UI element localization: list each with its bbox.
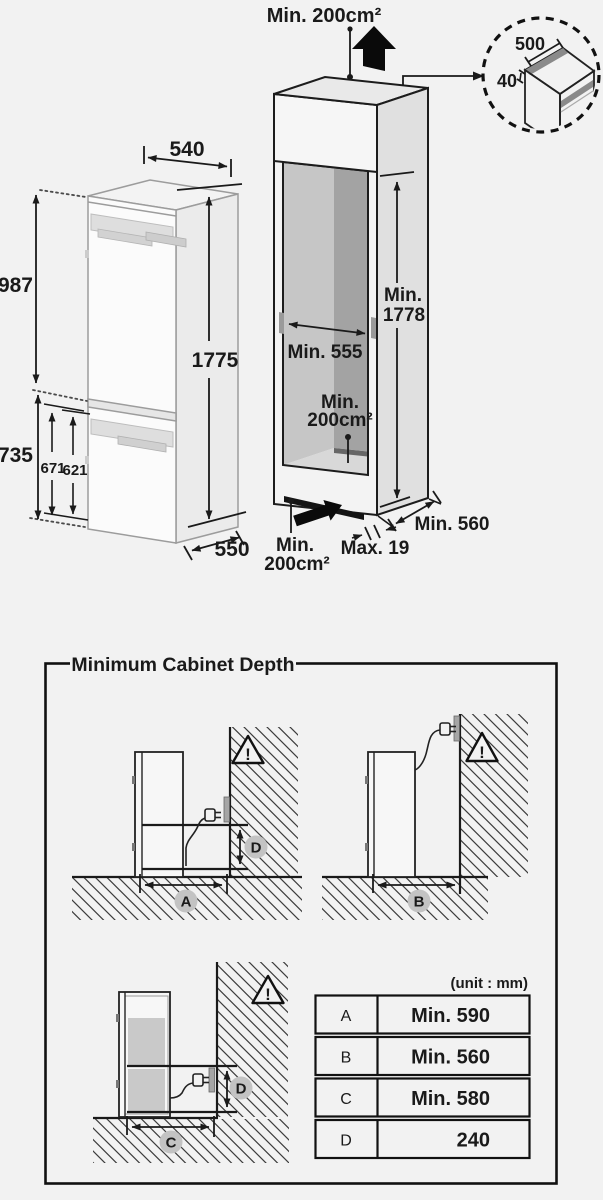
fridge-upper-height-label: 987 — [0, 274, 33, 297]
diagram-c: D C ! — [93, 962, 289, 1163]
svg-text:!: ! — [245, 745, 251, 764]
badge-d-label: D — [236, 1081, 247, 1098]
wall-hatch — [460, 714, 528, 877]
row-value: Min. 580 — [411, 1088, 490, 1110]
detail-depth-label: 40 — [497, 71, 517, 91]
fridge-compartment-block — [128, 1018, 165, 1065]
row-value: Min. 560 — [411, 1047, 490, 1069]
fridge-door-height2-label: 621 — [62, 462, 87, 479]
power-cord — [415, 730, 440, 770]
detail-width-label: 500 — [515, 34, 545, 54]
table-row: A Min. 590 — [316, 996, 530, 1034]
cabinet-height-value-label: 1778 — [383, 305, 425, 326]
depth-table: (unit : mm) A Min. 590 B Min. 560 C Min.… — [316, 975, 530, 1158]
table-row: C Min. 580 — [316, 1079, 530, 1117]
fridge-side-view — [368, 752, 415, 877]
top-clearance-callout: Min. 200cm² — [267, 5, 396, 80]
cabinet-depth-label: Min. 560 — [415, 514, 490, 535]
row-key: A — [341, 1008, 352, 1025]
power-plug-icon — [186, 809, 221, 866]
row-key: B — [341, 1050, 352, 1067]
diagram-b: B ! — [322, 714, 528, 920]
hinge-plate-right — [371, 317, 376, 339]
table-row: D 240 — [316, 1120, 530, 1158]
cabinet-soffit-panel — [274, 94, 377, 172]
panel-thickness-label: Max. 19 — [341, 538, 410, 559]
front-vent-label-line1: Min. — [276, 535, 314, 556]
detail-pointer — [403, 72, 484, 87]
power-plug-icon — [170, 1074, 209, 1098]
fridge-lower-section-label: 735 — [0, 444, 33, 467]
floor-hatch — [93, 1119, 289, 1163]
cabinet-height-min-label: Min. — [384, 285, 422, 306]
hinge-plate-left — [279, 312, 284, 334]
installation-dimensions-diagram: 540 987 735 671 621 1775 550 — [0, 0, 603, 630]
fridge-total-height-label: 1775 — [192, 349, 239, 372]
top-vent-detail-circle: 500 40 — [483, 18, 599, 147]
fridge-compartment-block — [128, 1069, 165, 1111]
installation-manual-page: { "colors": { "background": "#f2f2f2", "… — [0, 0, 603, 1200]
badge-b-label: B — [414, 894, 425, 911]
svg-text:!: ! — [265, 985, 271, 1004]
front-vent-label-line2: 200cm² — [264, 554, 330, 575]
row-value: Min. 590 — [411, 1005, 490, 1027]
wall-socket — [209, 1068, 215, 1092]
badge-a-label: A — [181, 894, 192, 911]
cabinet-inner-width-label: Min. 555 — [288, 342, 363, 363]
rear-vent-label-line2: 200cm² — [307, 410, 373, 431]
badge-c-label: C — [166, 1135, 177, 1152]
power-cord — [170, 1083, 193, 1098]
section-title: Minimum Cabinet Depth — [71, 654, 294, 676]
top-clearance-label: Min. 200cm² — [267, 5, 382, 27]
badge-d-label: D — [251, 840, 262, 857]
wall-socket — [224, 797, 230, 822]
fridge-depth-label: 550 — [214, 538, 249, 561]
power-plug-icon — [415, 723, 456, 770]
row-value: 240 — [457, 1130, 490, 1152]
svg-text:!: ! — [479, 743, 485, 762]
airflow-up-arrow-icon — [352, 26, 396, 71]
door-gasket-tab — [85, 250, 89, 258]
minimum-cabinet-depth-section: Minimum Cabinet Depth D A ! — [0, 630, 603, 1200]
table-row: B Min. 560 — [316, 1037, 530, 1075]
row-key: D — [340, 1133, 352, 1150]
unit-label: (unit : mm) — [451, 975, 528, 992]
wall-socket — [454, 716, 460, 741]
fridge-width-label: 540 — [169, 138, 204, 161]
diagram-a: D A ! — [72, 727, 302, 920]
row-key: C — [340, 1091, 352, 1108]
